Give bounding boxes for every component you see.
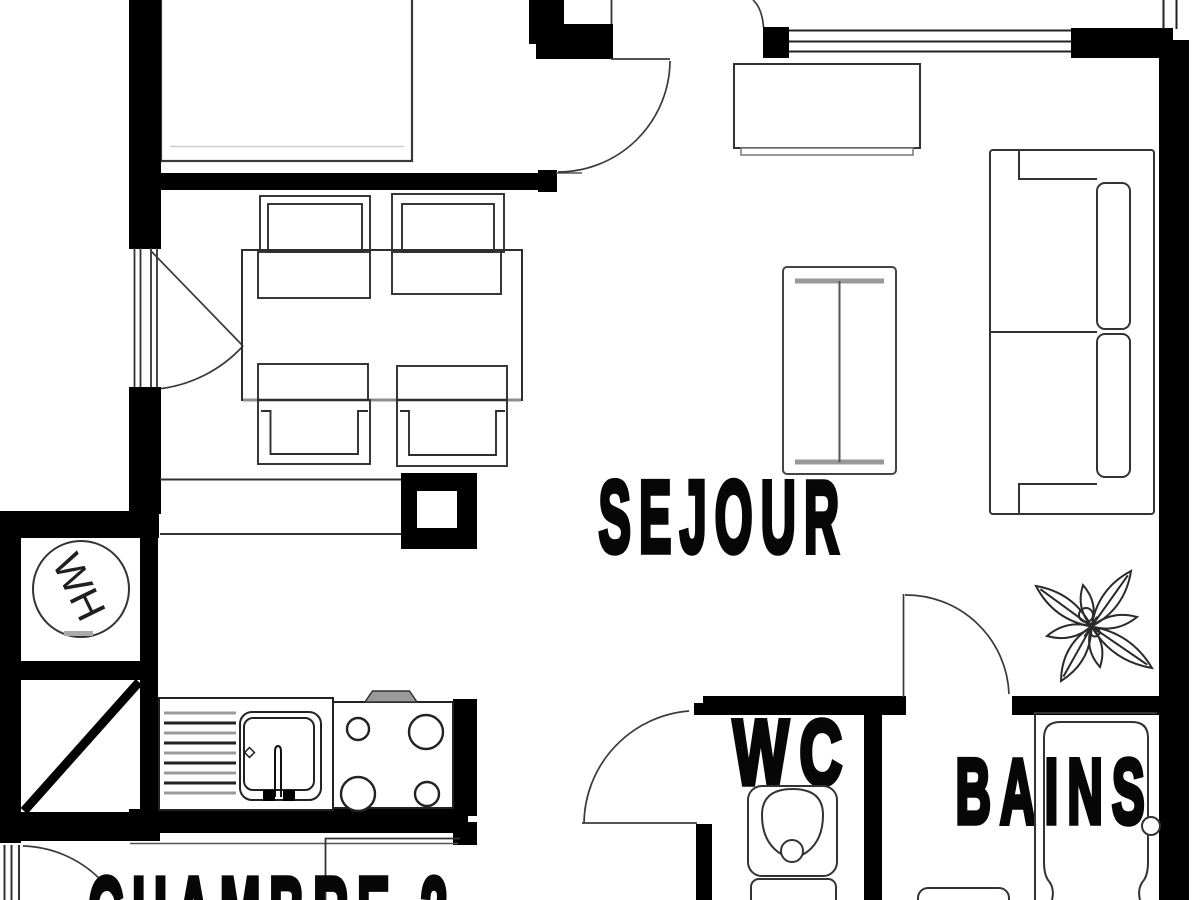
svg-text:SEJOUR: SEJOUR <box>599 460 848 574</box>
svg-text:CHAMBRE 2: CHAMBRE 2 <box>88 857 456 900</box>
svg-text:BAINS: BAINS <box>956 739 1154 843</box>
